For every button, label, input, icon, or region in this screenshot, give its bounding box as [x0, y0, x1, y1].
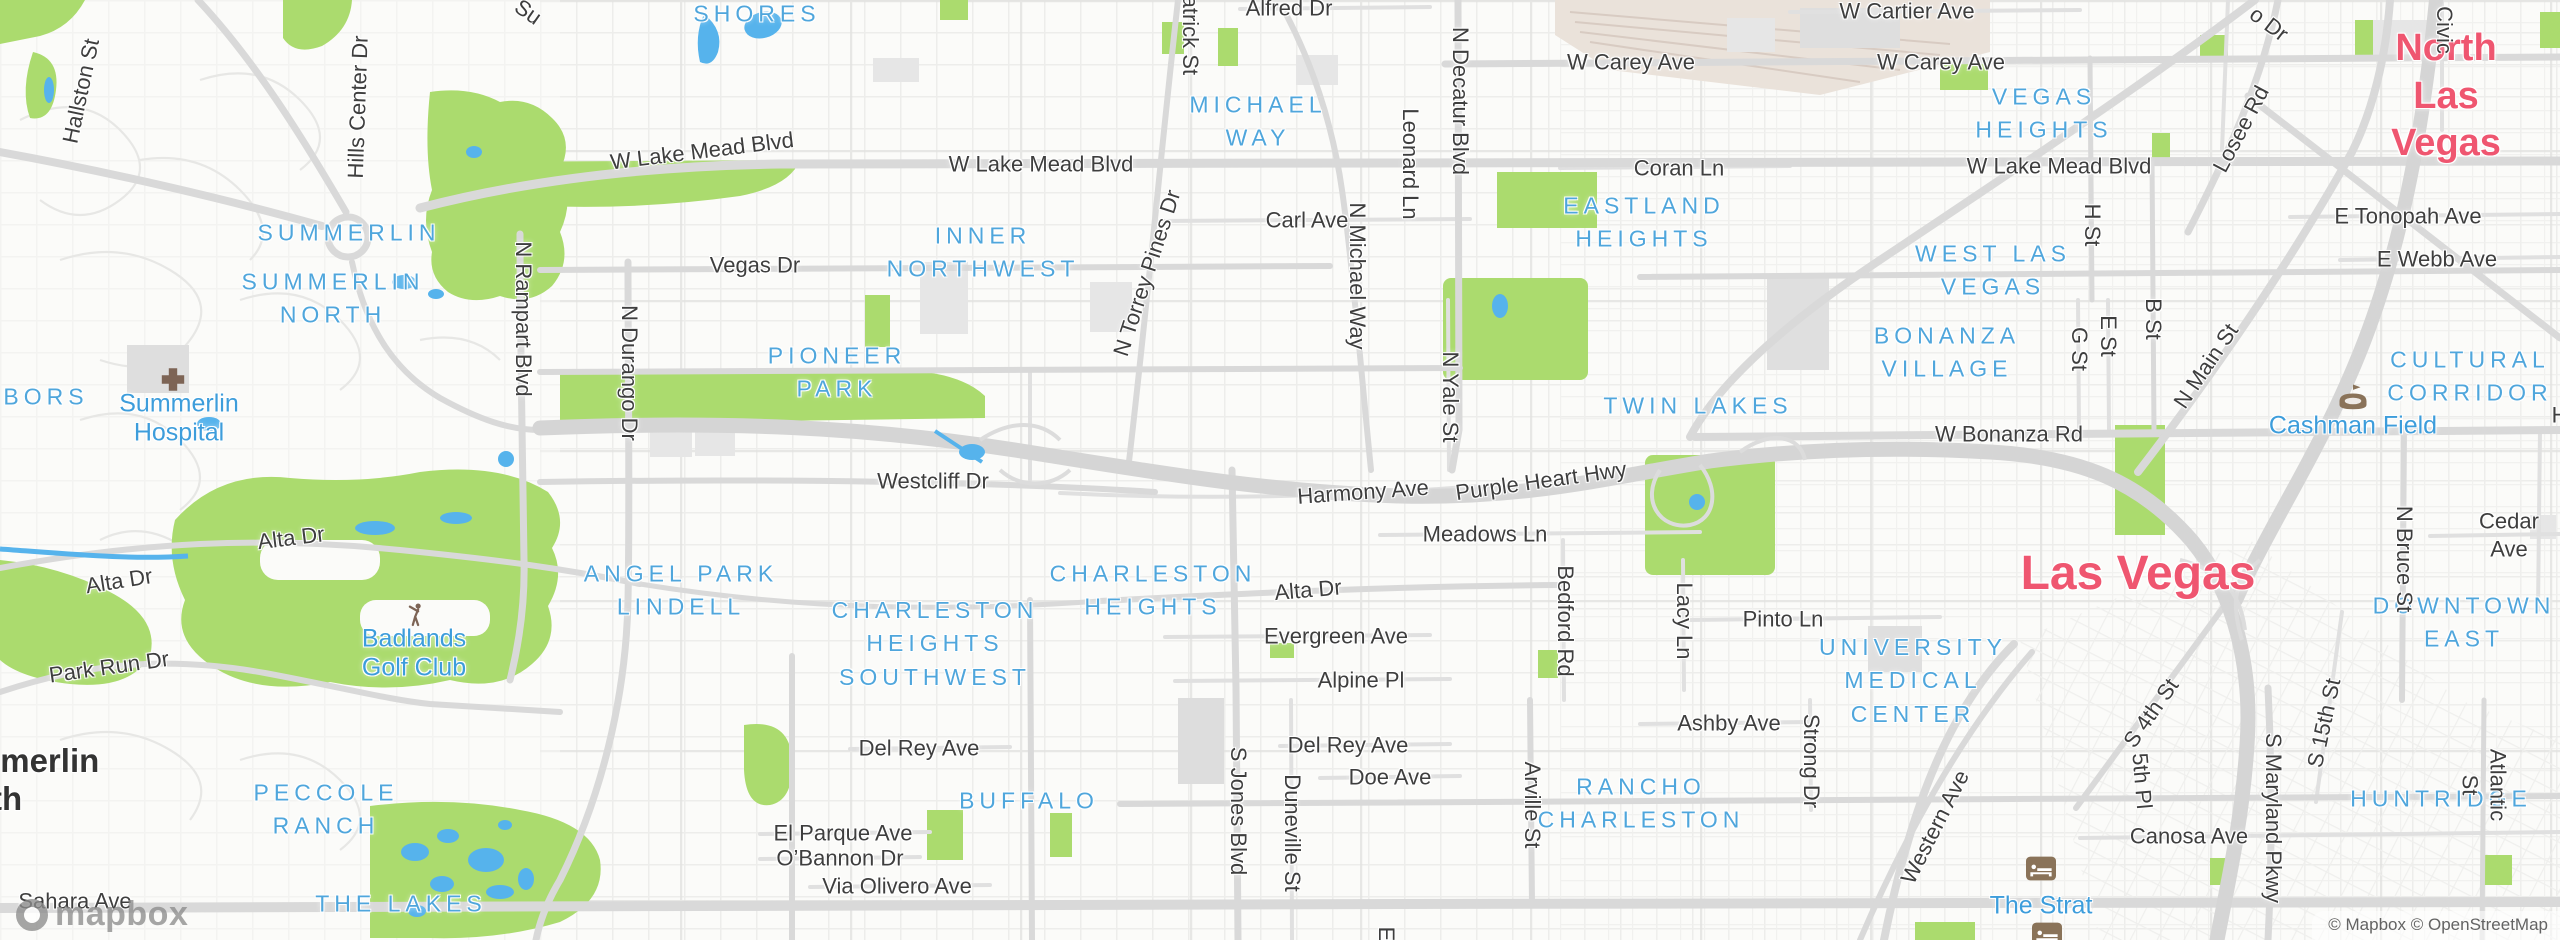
map-base-layer	[0, 0, 2560, 940]
mapbox-logo-icon	[16, 899, 48, 931]
attribution-osm-link[interactable]: © OpenStreetMap	[2411, 915, 2548, 934]
map-attribution: © Mapbox © OpenStreetMap	[2312, 911, 2560, 940]
mapbox-logo-text: mapbox	[55, 895, 188, 934]
mapbox-logo[interactable]: mapbox	[16, 895, 188, 934]
map-canvas[interactable]: North Las VegasLas VegasSummerlin SouthS…	[0, 0, 2560, 940]
attribution-mapbox-link[interactable]: © Mapbox	[2328, 915, 2406, 934]
